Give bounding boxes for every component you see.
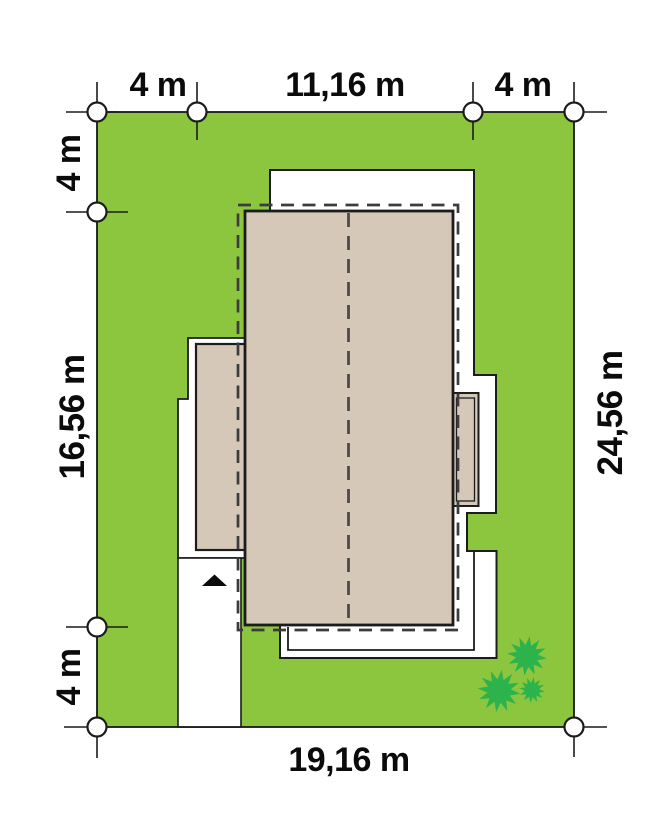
- dim-top-left-setback: 4 m: [129, 66, 186, 104]
- dim-left-bottom-setback: 4 m: [50, 648, 88, 705]
- boundary-marker-icon: [88, 203, 107, 222]
- dim-bottom-plot-width: 19,16 m: [288, 741, 409, 779]
- boundary-marker-icon: [464, 103, 483, 122]
- dim-top-building-width: 11,16 m: [285, 66, 404, 104]
- dim-left-building-depth: 16,56 m: [53, 355, 92, 480]
- dim-left-top-setback: 4 m: [50, 134, 88, 191]
- boundary-marker-icon: [88, 103, 107, 122]
- boundary-marker-icon: [565, 103, 584, 122]
- boundary-marker-icon: [88, 618, 107, 637]
- boundary-marker-icon: [88, 718, 107, 737]
- boundary-marker-icon: [188, 103, 207, 122]
- dim-right-plot-depth: 24,56 m: [591, 351, 630, 476]
- site-plan-drawing: 4 m 11,16 m 4 m 4 m 16,56 m 4 m 24,56 m …: [0, 0, 655, 824]
- boundary-marker-icon: [565, 718, 584, 737]
- site-plan-page: 4 m 11,16 m 4 m 4 m 16,56 m 4 m 24,56 m …: [0, 0, 655, 824]
- dim-top-right-setback: 4 m: [494, 66, 551, 104]
